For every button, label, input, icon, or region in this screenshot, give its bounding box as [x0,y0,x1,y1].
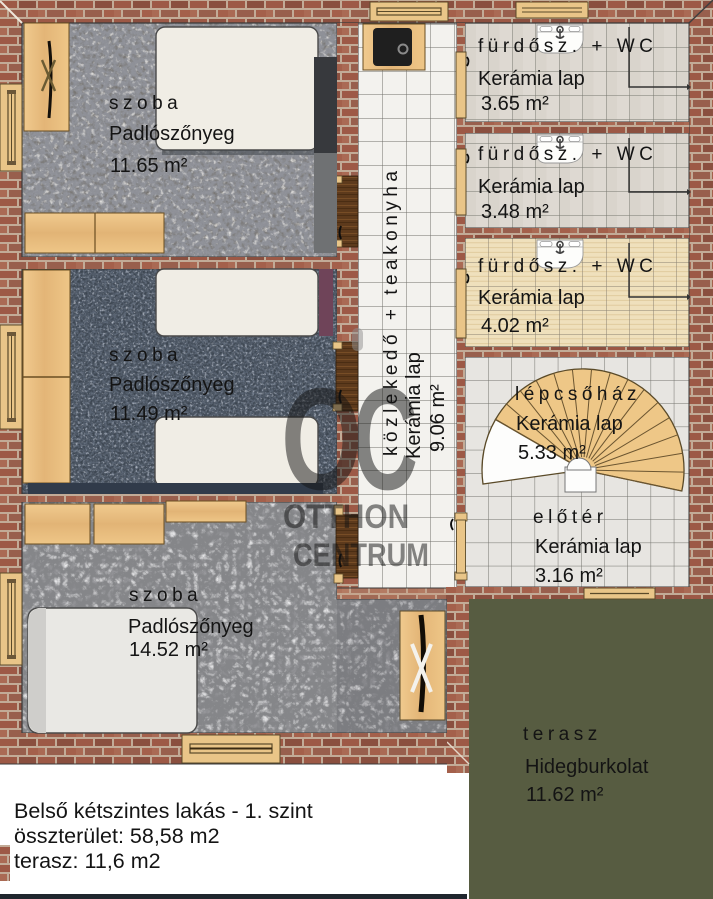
svg-text:14.52 m²: 14.52 m² [129,639,208,661]
svg-text:fürdősz. + WC: fürdősz. + WC [478,144,657,165]
svg-text:OTTHON: OTTHON [283,497,409,535]
svg-text:Padlószőnyeg: Padlószőnyeg [109,374,235,396]
svg-text:Padlószőnyeg: Padlószőnyeg [109,123,235,145]
svg-text:szoba: szoba [109,345,182,366]
svg-text:összterület: 58,58 m2: összterület: 58,58 m2 [14,824,220,848]
svg-text:3.16 m²: 3.16 m² [535,565,603,587]
svg-text:fürdősz. + WC: fürdősz. + WC [478,256,657,277]
svg-text:Kerámia lap: Kerámia lap [478,176,585,198]
svg-text:előtér: előtér [533,507,608,528]
svg-text:O: O [281,358,362,520]
svg-text:11.49 m²: 11.49 m² [110,403,188,425]
svg-text:Belső kétszintes lakás - 1. sz: Belső kétszintes lakás - 1. szint [14,799,313,823]
svg-text:közlekedő + teakonyha: közlekedő + teakonyha [381,167,402,456]
svg-text:Kerámia lap: Kerámia lap [478,287,585,309]
svg-text:CENTRUM: CENTRUM [293,538,429,574]
svg-text:szoba: szoba [129,585,202,606]
svg-text:Kerámia lap: Kerámia lap [403,352,425,459]
svg-text:terasz: terasz [523,724,602,745]
svg-text:3.48 m²: 3.48 m² [481,201,549,223]
svg-text:szoba: szoba [109,93,182,114]
svg-text:5.33 m²: 5.33 m² [518,442,586,464]
svg-text:Kerámia lap: Kerámia lap [535,536,642,558]
svg-text:Kerámia lap: Kerámia lap [478,68,585,90]
svg-text:11.65 m²: 11.65 m² [110,155,188,177]
svg-text:Hidegburkolat: Hidegburkolat [525,756,649,778]
svg-text:Padlószőnyeg: Padlószőnyeg [128,616,254,638]
svg-text:3.65 m²: 3.65 m² [481,93,549,115]
svg-text:terasz: 11,6 m2: terasz: 11,6 m2 [14,849,161,873]
svg-text:11.62 m²: 11.62 m² [526,784,604,806]
svg-text:9.06 m²: 9.06 m² [427,384,449,452]
svg-text:4.02 m²: 4.02 m² [481,315,549,337]
svg-text:Kerámia lap: Kerámia lap [516,413,623,435]
svg-text:fürdősz. + WC: fürdősz. + WC [478,36,657,57]
svg-text:lépcsőház: lépcsőház [515,384,641,405]
